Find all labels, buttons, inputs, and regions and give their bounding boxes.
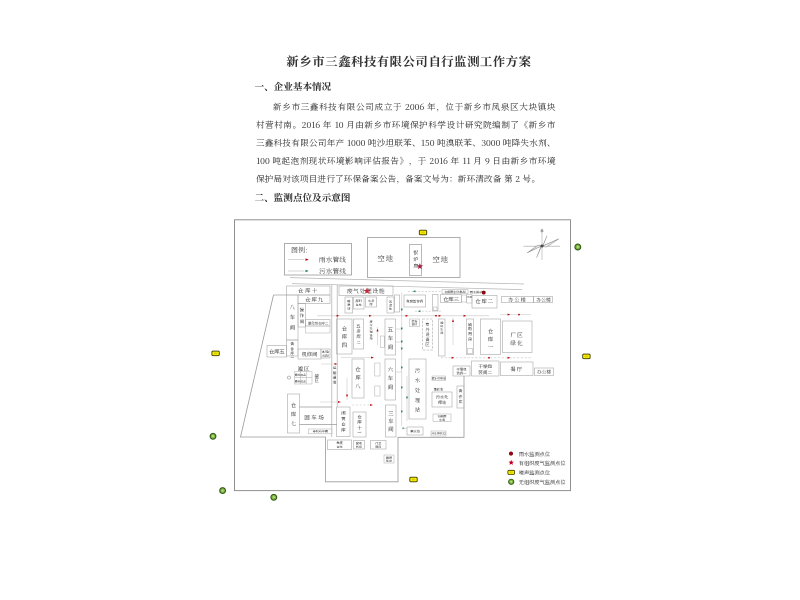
svg-text:污水管线: 污水管线: [319, 265, 346, 275]
svg-text:八车间: 八车间: [288, 304, 296, 335]
svg-text:餐厅: 餐厅: [509, 366, 523, 373]
svg-text:仓库: 仓库: [335, 444, 343, 449]
svg-text:仓库五: 仓库五: [268, 348, 285, 355]
svg-text:初期雨水收集池: 初期雨水收集池: [443, 290, 466, 294]
svg-text:催化剂仓库二: 催化剂仓库二: [307, 320, 329, 325]
svg-text:装间二: 装间二: [478, 369, 492, 376]
svg-text:非机动车棚: 非机动车棚: [313, 430, 328, 434]
svg-text:废气处理设施: 废气处理设施: [369, 320, 374, 341]
svg-text:运输通道: 运输通道: [332, 365, 337, 385]
svg-text:三车间: 三车间: [387, 410, 395, 433]
svg-text:循环水池: 循环水池: [439, 321, 444, 334]
svg-text:回收: 回收: [412, 323, 418, 327]
svg-text:雨水管线: 雨水管线: [318, 254, 346, 264]
svg-text:回车场: 回车场: [304, 413, 325, 421]
svg-text:原料: 原料: [294, 379, 301, 383]
svg-text:仓库十一: 仓库十一: [357, 415, 363, 435]
svg-text:辅助用房: 辅助用房: [467, 322, 472, 342]
svg-text:仓库九: 仓库九: [304, 295, 324, 303]
svg-text:事故池: 事故池: [433, 386, 444, 391]
svg-text:水池: 水池: [438, 418, 446, 422]
svg-text:五金库: 五金库: [388, 300, 393, 311]
svg-text:门卫: 门卫: [467, 295, 473, 299]
svg-text:危废暂存间: 危废暂存间: [405, 299, 424, 304]
svg-text:有组织废气监测点位: 有组织废气监测点位: [519, 460, 567, 467]
svg-text:原水收集池: 原水收集池: [431, 377, 446, 381]
svg-text:图例:: 图例:: [291, 244, 308, 254]
svg-text:原料: 原料: [294, 373, 301, 377]
svg-text:成品: 成品: [300, 379, 307, 383]
svg-text:办公楼: 办公楼: [536, 368, 551, 375]
svg-text:六车间: 六车间: [386, 366, 394, 393]
svg-text:集水池: 集水池: [409, 429, 420, 434]
svg-text:仓库七: 仓库七: [290, 402, 298, 429]
svg-text:操作间: 操作间: [299, 307, 305, 326]
svg-text:污水处理站: 污水处理站: [414, 367, 421, 416]
svg-text:装间一: 装间一: [456, 370, 467, 375]
svg-text:办公楼: 办公楼: [508, 296, 527, 303]
svg-text:闲置仓库: 闲置仓库: [340, 411, 346, 433]
svg-text:喷淋塔: 喷淋塔: [346, 300, 351, 311]
svg-text:仓库三: 仓库三: [442, 296, 459, 303]
svg-text:仓库八: 仓库八: [354, 366, 362, 391]
svg-text:暂存: 暂存: [385, 459, 392, 463]
svg-text:空地: 空地: [433, 255, 449, 265]
svg-text:仓库: 仓库: [355, 302, 363, 307]
svg-text:厂区: 厂区: [510, 331, 524, 339]
svg-text:五金库二: 五金库二: [356, 323, 362, 345]
svg-text:罐区: 罐区: [314, 373, 320, 383]
svg-text:仓库二: 仓库二: [474, 297, 494, 305]
svg-text:噪声监测点位: 噪声监测点位: [519, 470, 551, 477]
svg-text:备件库二: 备件库二: [290, 342, 295, 358]
svg-text:空地: 空地: [378, 254, 394, 264]
svg-text:成品: 成品: [300, 373, 307, 377]
svg-text:仓库四: 仓库四: [340, 326, 348, 350]
svg-text:控制: 控制: [321, 353, 329, 358]
svg-text:机修间: 机修间: [302, 351, 318, 358]
svg-text:雨水监测点位: 雨水监测点位: [519, 451, 551, 458]
svg-text:北: 北: [539, 228, 544, 233]
svg-text:备件库: 备件库: [458, 389, 463, 404]
svg-text:无组织废气监测点位: 无组织废气监测点位: [519, 479, 567, 486]
svg-text:绿化: 绿化: [510, 339, 524, 347]
svg-text:五车间: 五车间: [386, 326, 394, 353]
svg-text:仓库一: 仓库一: [487, 328, 495, 352]
svg-text:室外设备区: 室外设备区: [425, 322, 431, 347]
svg-text:机房: 机房: [355, 445, 363, 449]
svg-text:仓库十: 仓库十: [297, 287, 319, 295]
svg-text:用房: 用房: [374, 445, 382, 449]
svg-text:理站: 理站: [437, 400, 446, 406]
svg-text:办公楼: 办公楼: [536, 296, 551, 303]
svg-text:污水排放口: 污水排放口: [432, 432, 446, 436]
